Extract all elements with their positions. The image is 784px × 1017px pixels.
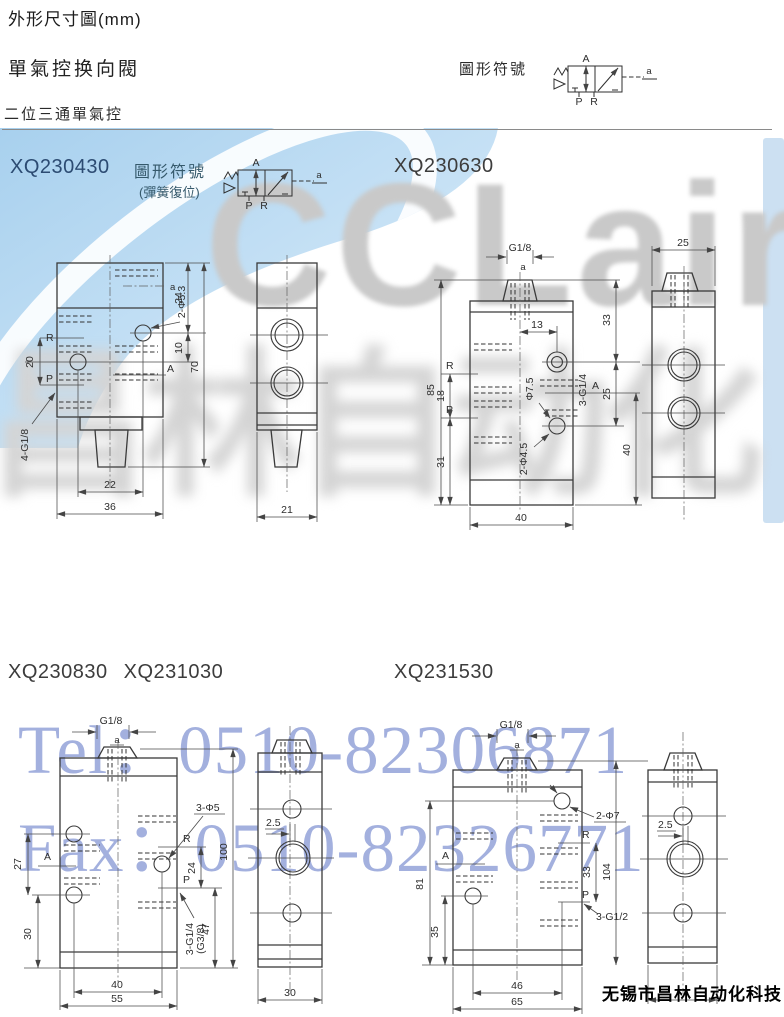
dim-18: 18	[435, 390, 447, 402]
section-divider	[2, 129, 772, 130]
pilot-a-label: a	[514, 740, 520, 751]
body-outline	[453, 758, 582, 965]
symbol-pilot-a-label: a	[646, 66, 652, 77]
dim-81: 81	[414, 878, 426, 890]
drawing-xq231530-front: G1/8 a 2-Φ7 R P A 3-G1/2 33 104 81 35 46…	[408, 712, 653, 1017]
drawing-xq230830-front: G1/8 a 3-Φ5 A R P 27 30 24 3-G1/4 (G3/8)…	[10, 712, 245, 1012]
dim-25: 25	[601, 388, 613, 400]
dim-36: 36	[104, 501, 116, 513]
symbol-port-a-label: A	[252, 157, 259, 169]
dim-100: 100	[218, 843, 230, 861]
ports-holes	[642, 349, 725, 429]
symbol-pilot-a-label: a	[316, 170, 322, 181]
port-a-label: A	[44, 851, 51, 863]
dim-27: 27	[12, 858, 24, 870]
thread-g14-callout: 3-G1/4	[577, 374, 589, 406]
dim-40-right: 40	[621, 444, 633, 456]
dim-10: 10	[173, 342, 185, 354]
port-p-label: P	[183, 874, 190, 886]
symbol-port-p-label: P	[245, 200, 252, 212]
thread-g18-label: G1/8	[509, 242, 532, 254]
port-r-label: R	[183, 833, 191, 845]
port-p-label: P	[582, 889, 589, 901]
drawing-xq230630-front: G1/8 a R P A 13 85 18 31 33 25 40 Φ7.5 2…	[420, 240, 650, 530]
dim-21: 21	[281, 504, 293, 516]
dim-65: 65	[511, 996, 523, 1008]
dim-46: 46	[511, 980, 523, 992]
symbol-graphic	[554, 66, 657, 97]
dim-104: 104	[601, 863, 613, 881]
symbol-note-spring-return: (彈簧復位)	[139, 182, 200, 201]
symbol-title-2: 圖形符號	[134, 158, 206, 182]
drawing-xq230430-side: 21	[250, 252, 340, 532]
dim-24: 24	[173, 292, 185, 304]
dim-31: 31	[435, 456, 447, 468]
valve-symbol-main: A P R a	[552, 48, 677, 110]
dim-24: 24	[186, 862, 198, 874]
dim-40: 40	[111, 979, 123, 991]
hole-75-callout: Φ7.5	[524, 377, 536, 400]
hole-callout: 3-Φ5	[196, 802, 220, 814]
symbol-port-r-label: R	[260, 200, 268, 212]
dim-25: 25	[677, 238, 689, 249]
port-a-label: A	[167, 363, 174, 375]
valve-symbol-xq230430: A P R a	[222, 152, 347, 214]
port-r-label: R	[446, 360, 454, 372]
section-title: 二位三通單氣控	[4, 103, 123, 124]
drawing-xq230830-side: 2.5 30	[248, 712, 340, 1012]
body-outline	[648, 753, 717, 963]
hole-45-callout: 2-Φ4.5	[518, 443, 530, 475]
port-a-label: A	[592, 380, 599, 392]
symbol-port-p-label: P	[575, 96, 582, 108]
dim-40-bottom: 40	[515, 512, 527, 524]
cap-thread-dashes	[671, 275, 688, 310]
page-title: 外形尺寸圖(mm)	[8, 5, 142, 30]
centerlines	[110, 255, 166, 487]
drawing-xq230430-front: a R P A 20 4-G1/8 2-Φ5.3 24 10 70 22 36	[18, 252, 238, 532]
model-xq230830: XQ230830	[8, 661, 108, 683]
dim-55: 55	[111, 993, 123, 1005]
drawing-xq230630-side: 25	[640, 238, 750, 528]
hole-callout: 2-Φ7	[596, 810, 620, 822]
thread-callout: 3-G1/2	[596, 911, 628, 923]
pilot-a-label: a	[114, 735, 120, 746]
dimensions	[648, 826, 717, 1004]
model-row-xq230830-xq231030: XQ230830XQ231030	[8, 661, 223, 684]
dim-33: 33	[581, 866, 593, 878]
port-a-label: A	[442, 850, 449, 862]
dim-30: 30	[284, 987, 296, 999]
symbol-graphic	[224, 170, 327, 201]
dim-2-5: 2.5	[266, 817, 281, 829]
model-xq231530: XQ231530	[394, 661, 494, 684]
dim-13: 13	[531, 319, 543, 331]
dimensions	[422, 729, 648, 1014]
port-r-label: R	[582, 829, 590, 841]
body-outline	[60, 747, 177, 968]
dim-2-5: 2.5	[658, 819, 673, 831]
symbol-port-r-label: R	[590, 96, 598, 108]
dimensions	[652, 246, 715, 286]
drawing-xq231530-side: 2.5	[638, 712, 738, 1012]
dim-33: 33	[601, 314, 613, 326]
model-xq231030: XQ231030	[124, 661, 224, 683]
dim-47: 47	[200, 923, 212, 935]
dim-70: 70	[189, 361, 201, 373]
thread-callout: 4-G1/8	[19, 429, 31, 461]
dim-22: 22	[104, 479, 116, 491]
product-name: 單氣控换向閥	[8, 54, 140, 81]
cap-thread-dashes	[108, 749, 126, 782]
company-footer: 无锡市昌林自动化科技	[602, 980, 782, 1005]
ports-holes	[640, 807, 728, 922]
model-xq230430: XQ230430	[10, 156, 110, 179]
dim-35: 35	[429, 926, 441, 938]
port-r-label: R	[46, 332, 54, 344]
pilot-a-label: a	[520, 262, 526, 273]
symbol-port-a-label: A	[582, 53, 589, 65]
dimensions	[24, 725, 238, 1010]
port-p-label: P	[446, 404, 453, 416]
ports-holes	[250, 319, 328, 399]
thread-g18-label: G1/8	[100, 715, 123, 727]
port-p-label: P	[46, 373, 53, 385]
model-xq230630: XQ230630	[394, 155, 494, 178]
ports-holes	[248, 800, 334, 922]
datasheet-page: CCLair 昌林自动化 Tel：0510-82306871 Fax：0510-…	[0, 0, 784, 1017]
thread-g18-label: G1/8	[500, 719, 523, 731]
dim-30: 30	[22, 928, 34, 940]
symbol-title: 圖形符號	[459, 58, 527, 79]
dim-20: 20	[24, 356, 36, 368]
